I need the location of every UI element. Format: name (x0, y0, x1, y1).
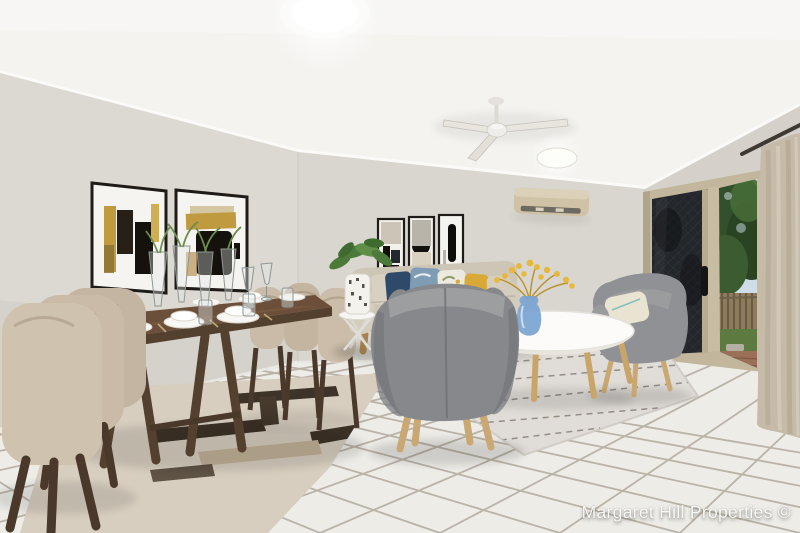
oyster-light (531, 132, 583, 184)
room-scene (0, 0, 800, 533)
listing-photo: Margaret Hill Properties © (0, 0, 800, 533)
curtain (757, 133, 800, 438)
door-handle (701, 266, 708, 296)
air-conditioner (511, 187, 592, 224)
